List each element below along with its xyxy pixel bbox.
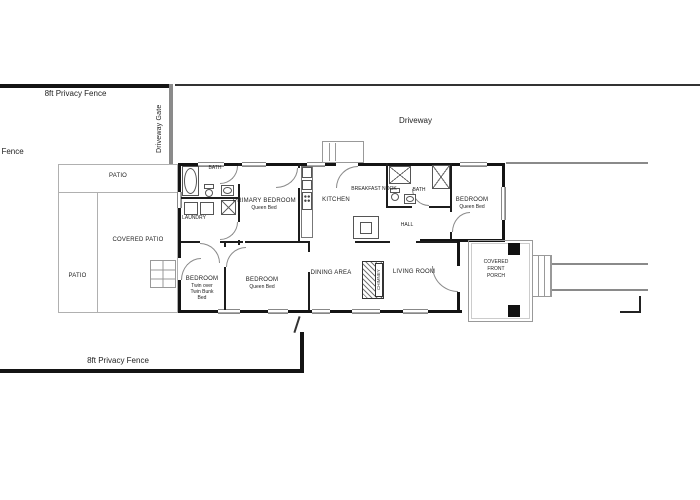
toilet2-bowl-icon (391, 193, 399, 201)
patio-side-label: PATIO (59, 273, 96, 280)
bunk-bedroom-label: BEDROOM (180, 276, 224, 283)
washer-icon (184, 202, 198, 215)
porch-label-1: COVERED (471, 260, 521, 266)
laundry-door-gap (238, 222, 240, 240)
hall-opening (390, 241, 416, 243)
fence-bottom-vertical (300, 332, 304, 373)
bunk-bed-line3: Bed (180, 296, 224, 302)
walkway-edge-bottom (549, 289, 648, 291)
porch-post-bottom (508, 305, 520, 317)
water-heater-closet-icon (389, 166, 411, 184)
bath-door-gap (238, 166, 240, 184)
back-stoop-steps (324, 143, 338, 161)
bath2-door-gap (412, 206, 429, 208)
driveway-label: Driveway (383, 116, 448, 125)
hall-label: HALL (389, 223, 425, 229)
primary-bedroom-label: PRIMARY BEDROOM (233, 198, 295, 205)
bed-front-door-gap (243, 241, 245, 243)
bedroom-front-label: BEDROOM (238, 277, 286, 284)
dining-area-label: DINING AREA (301, 270, 361, 277)
bedroom-back-bed-label: Queen Bed (448, 205, 496, 211)
fence-bottom-label: 8ft Privacy Fence (68, 356, 168, 365)
window-bed-back (460, 162, 487, 167)
patio-divider-v (97, 192, 98, 313)
fence-bottom-line (0, 369, 304, 373)
window-living-south2 (403, 309, 428, 314)
window-bunk-south (218, 309, 240, 314)
bathtub-basin-icon (184, 168, 197, 194)
fridge-icon (302, 167, 312, 178)
closet-bifold-icon (432, 165, 450, 189)
dining-opening (308, 252, 310, 272)
toilet-bowl-icon (205, 189, 213, 197)
bedroom-front-bed-label: Queen Bed (238, 285, 286, 291)
primary-door-gap (298, 168, 300, 188)
chimney-label-strip: CHIMNEY (375, 263, 383, 297)
window-dining (312, 309, 330, 314)
window-primary (242, 162, 266, 167)
porch-inner (471, 243, 530, 319)
wall-bath-south (181, 197, 238, 199)
primary-bed-label: Queen Bed (233, 206, 295, 212)
fence-left-label: Privacy Fence (0, 147, 53, 156)
window-bed-front-south (268, 309, 288, 314)
patio-steps (150, 260, 176, 288)
laundry-label: LAUNDRY (171, 216, 217, 222)
driveway-edge-right (506, 162, 648, 164)
boundary-line-top (175, 84, 700, 86)
porch-post-top (508, 243, 520, 255)
breakfast-nook-label: BREAKFAST NOOK (340, 187, 408, 193)
dryer-icon (200, 202, 214, 215)
corner-mark-v (639, 296, 641, 313)
driveway-gate-bar (169, 84, 173, 164)
porch-label-2: FRONT (471, 267, 521, 273)
patio-divider-h (58, 192, 178, 193)
window-living-south1 (352, 309, 380, 314)
back-stoop (322, 141, 364, 163)
bath2-label: BATH (402, 188, 436, 194)
living-room-label: LIVING ROOM (384, 269, 444, 276)
covered-patio-label: COVERED PATIO (100, 237, 176, 244)
window-bed-back-east (501, 187, 506, 220)
porch-steps (532, 255, 552, 297)
gate-swing-mark (293, 316, 300, 333)
bunk-door-swing (200, 243, 220, 263)
bath1-label: BATH (192, 166, 238, 172)
laundry-door-swing (220, 222, 238, 240)
peninsula-stool-icon (360, 222, 372, 234)
fence-top-label: 8ft Privacy Fence (28, 89, 123, 98)
floor-plan: 8ft Privacy Fence Driveway Gate Privacy … (0, 0, 700, 500)
kitchen-label: KITCHEN (310, 197, 362, 204)
bath-sink-basin-icon (223, 187, 232, 194)
bed-front-door-swing (226, 247, 246, 267)
kitchen-sink-icon (302, 180, 312, 190)
patio-top-label: PATIO (88, 173, 148, 180)
walkway-edge-top (549, 263, 648, 265)
porch-label-3: PORCH (471, 274, 521, 280)
driveway-gate-label: Driveway Gate (156, 94, 164, 164)
bedroom-back-label: BEDROOM (448, 197, 496, 204)
corner-mark-h (620, 311, 641, 313)
fence-top-line (0, 84, 169, 88)
back-door-swing (336, 166, 358, 188)
primary-door-swing (276, 168, 298, 188)
bath2-sink-basin-icon (406, 196, 414, 202)
chimney-label: CHIMNEY (376, 265, 381, 295)
bed-back-door-swing (452, 212, 470, 232)
